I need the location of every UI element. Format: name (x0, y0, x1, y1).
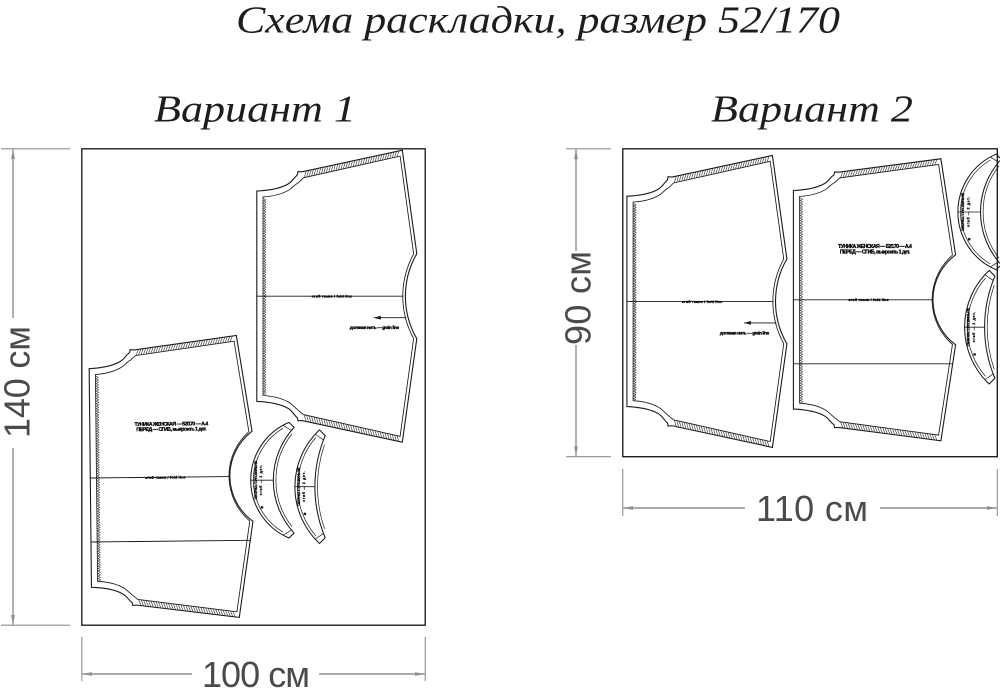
svg-text:ПЕРЕД — СГИБ, выкроить 1 дет.: ПЕРЕД — СГИБ, выкроить 1 дет. (840, 249, 911, 255)
svg-text:долевая нить — grain line: долевая нить — grain line (720, 330, 770, 335)
svg-text:Вариант 1: Вариант 1 (154, 89, 356, 131)
svg-text:сгиб — 2 дет.: сгиб — 2 дет. (302, 471, 306, 501)
svg-text:сгиб — 2 дет.: сгиб — 2 дет. (259, 465, 263, 495)
svg-text:сгиб ткани / fold line: сгиб ткани / fold line (312, 295, 352, 299)
svg-text:Схема раскладки, размер 52/170: Схема раскладки, размер 52/170 (236, 0, 840, 42)
svg-text:сгиб ткани / fold line: сгиб ткани / fold line (848, 298, 888, 302)
svg-text:Вариант 2: Вариант 2 (711, 89, 913, 131)
svg-text:сгиб — 2 дет.: сгиб — 2 дет. (966, 197, 970, 227)
svg-text:сгиб ткани / fold line: сгиб ткани / fold line (682, 300, 722, 304)
svg-text:110 см: 110 см (756, 488, 868, 529)
svg-text:100 см: 100 см (202, 654, 310, 688)
svg-text:ОБТАЧКА ГОРЛОВИНЫ 52: ОБТАЧКА ГОРЛОВИНЫ 52 (961, 193, 965, 231)
svg-text:сгиб ткани / fold line: сгиб ткани / fold line (145, 475, 185, 479)
svg-text:ПЕРЕД — СГИБ, выкроить 1 дет.: ПЕРЕД — СГИБ, выкроить 1 дет. (136, 426, 207, 433)
svg-text:ОБТАЧКА ГОРЛОВИНЫ 52: ОБТАЧКА ГОРЛОВИНЫ 52 (254, 461, 258, 499)
svg-text:90 см: 90 см (558, 251, 599, 345)
svg-text:ОБТАЧКА ГОРЛОВИНЫ 52: ОБТАЧКА ГОРЛОВИНЫ 52 (297, 467, 301, 505)
svg-text:сгиб — 2 дет.: сгиб — 2 дет. (972, 312, 976, 342)
svg-text:ОБТАЧКА ГОРЛОВИНЫ 52: ОБТАЧКА ГОРЛОВИНЫ 52 (967, 308, 971, 346)
svg-text:140 см: 140 см (0, 326, 38, 438)
svg-text:долевая нить — grain line: долевая нить — grain line (350, 325, 400, 330)
